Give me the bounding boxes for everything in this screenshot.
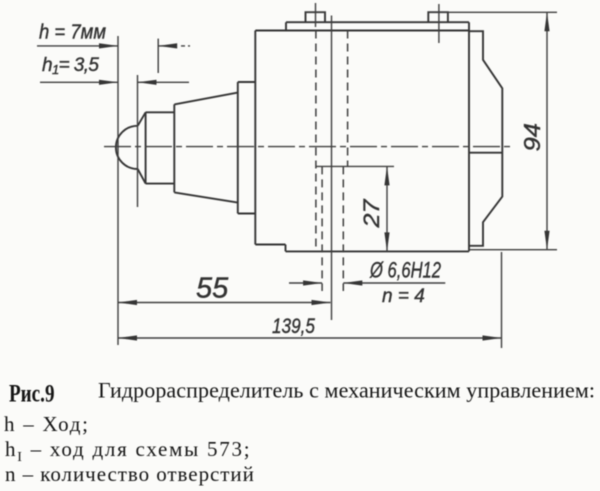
svg-text:Гидрораспределитель с механиче: Гидрораспределитель с механическим управ… (98, 378, 595, 403)
svg-text:27: 27 (359, 199, 384, 229)
svg-text:Рис.9: Рис.9 (9, 381, 55, 408)
svg-text:n = 4: n = 4 (382, 286, 425, 307)
svg-text:hI – ход для схемы 573;: hI – ход для схемы 573; (5, 437, 251, 465)
svg-text:n – количество отверстий: n – количество отверстий (5, 462, 255, 486)
svg-text:h1= 3,5: h1= 3,5 (42, 55, 99, 77)
svg-text:h = 7мм: h = 7мм (39, 22, 106, 44)
svg-text:139,5: 139,5 (272, 315, 315, 338)
svg-text:h – Ход;: h – Ход; (4, 412, 88, 436)
svg-text:Ø 6,6Н12: Ø 6,6Н12 (369, 258, 441, 283)
svg-text:94: 94 (519, 123, 545, 152)
svg-text:55: 55 (196, 273, 229, 305)
